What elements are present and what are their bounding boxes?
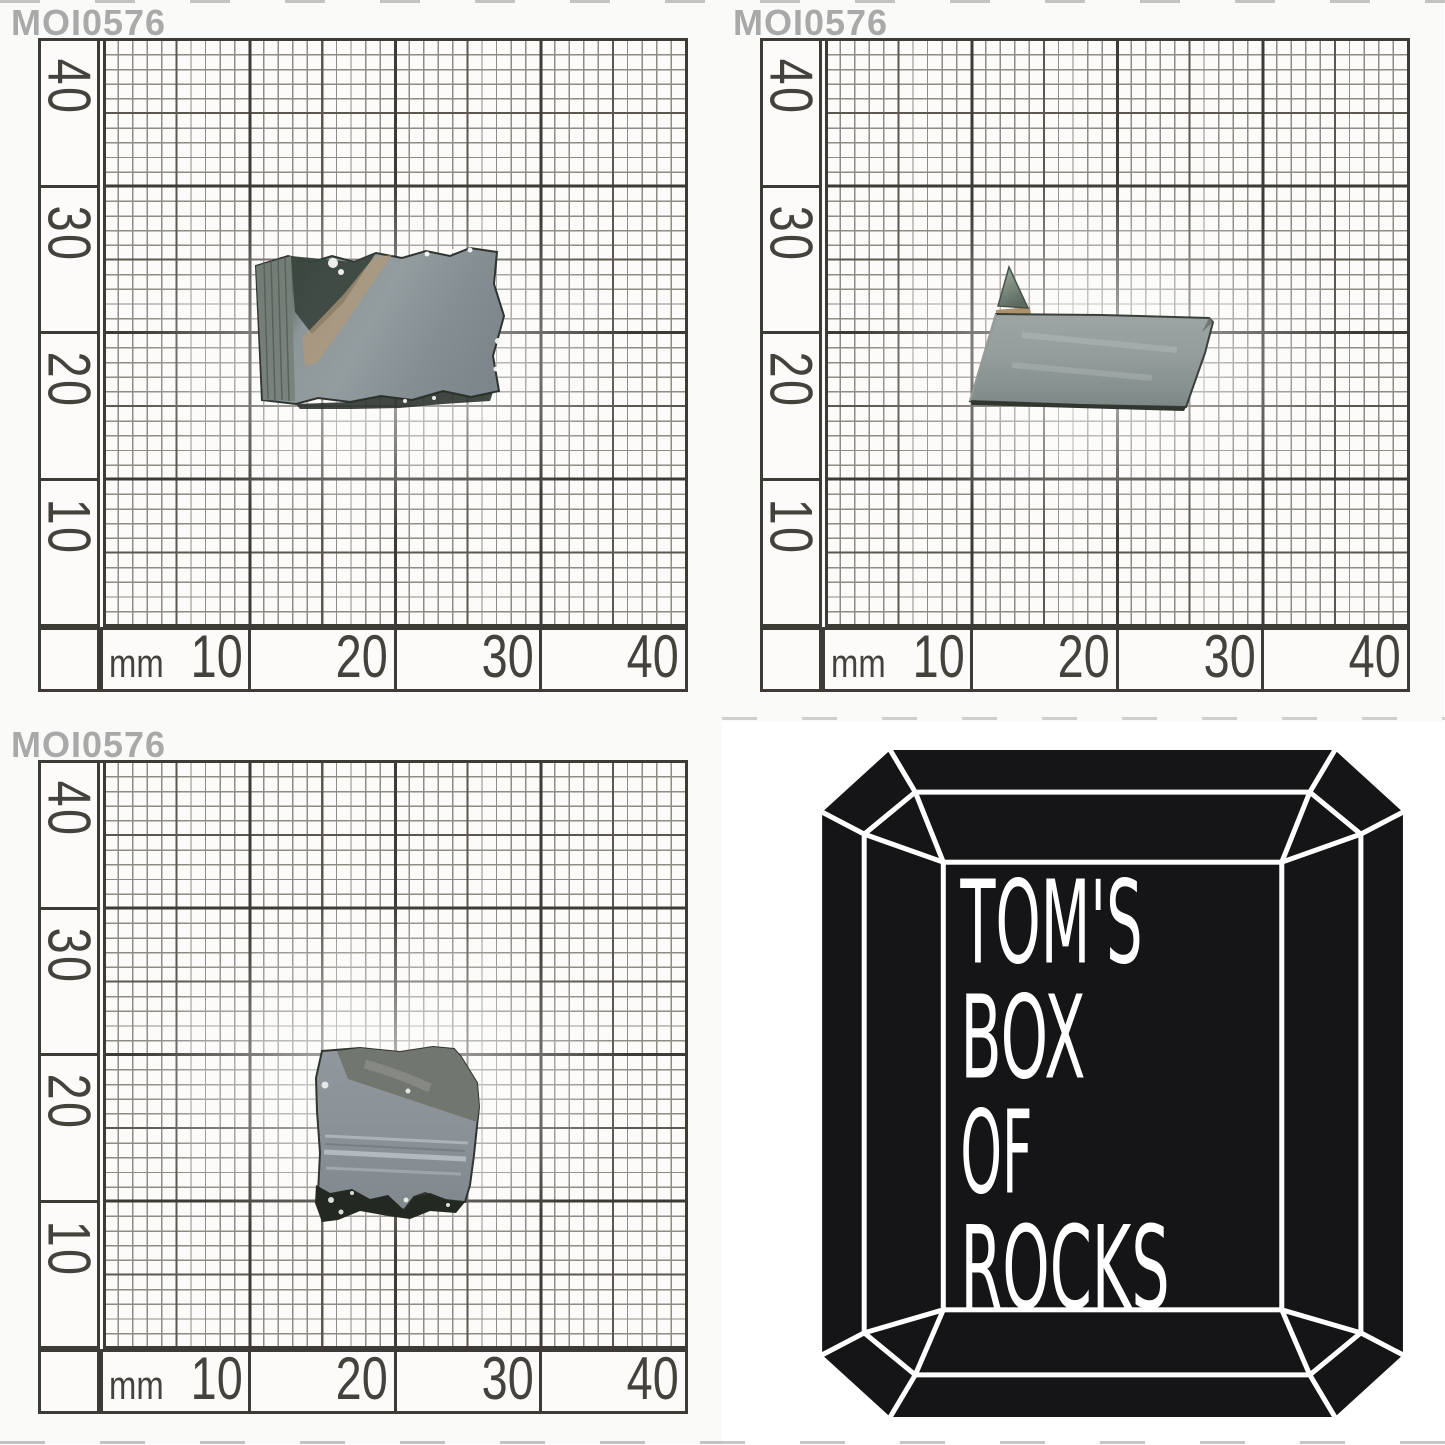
logo-text-line-3: OF — [960, 1087, 1032, 1221]
logo-text-line-1: TOM'S — [960, 856, 1143, 990]
specimen-face — [970, 314, 1213, 407]
photo-panel-end-view: MOI0576 40 30 20 10 mm10 20 30 40 — [0, 722, 722, 1444]
photo-panel-top-view: MOI0576 40 30 20 10 mm10 20 30 40 — [0, 0, 722, 722]
specimen-top-spur — [998, 267, 1028, 308]
logo-text-line-4: ROCKS — [960, 1202, 1169, 1336]
logo-panel: TOM'S BOX OF ROCKS — [722, 722, 1445, 1445]
photo-collage: MOI0576 40 30 20 10 mm10 20 30 40 — [0, 0, 1445, 1445]
specimen-photo-end — [0, 722, 722, 1444]
logo-text-line-2: BOX — [960, 971, 1085, 1105]
specimen-photo-side — [722, 0, 1444, 722]
photo-panel-side-view: MOI0576 40 30 20 10 mm10 20 30 40 — [722, 0, 1444, 722]
specimen-photo-top — [0, 0, 722, 722]
gem-logo: TOM'S BOX OF ROCKS — [722, 722, 1445, 1445]
